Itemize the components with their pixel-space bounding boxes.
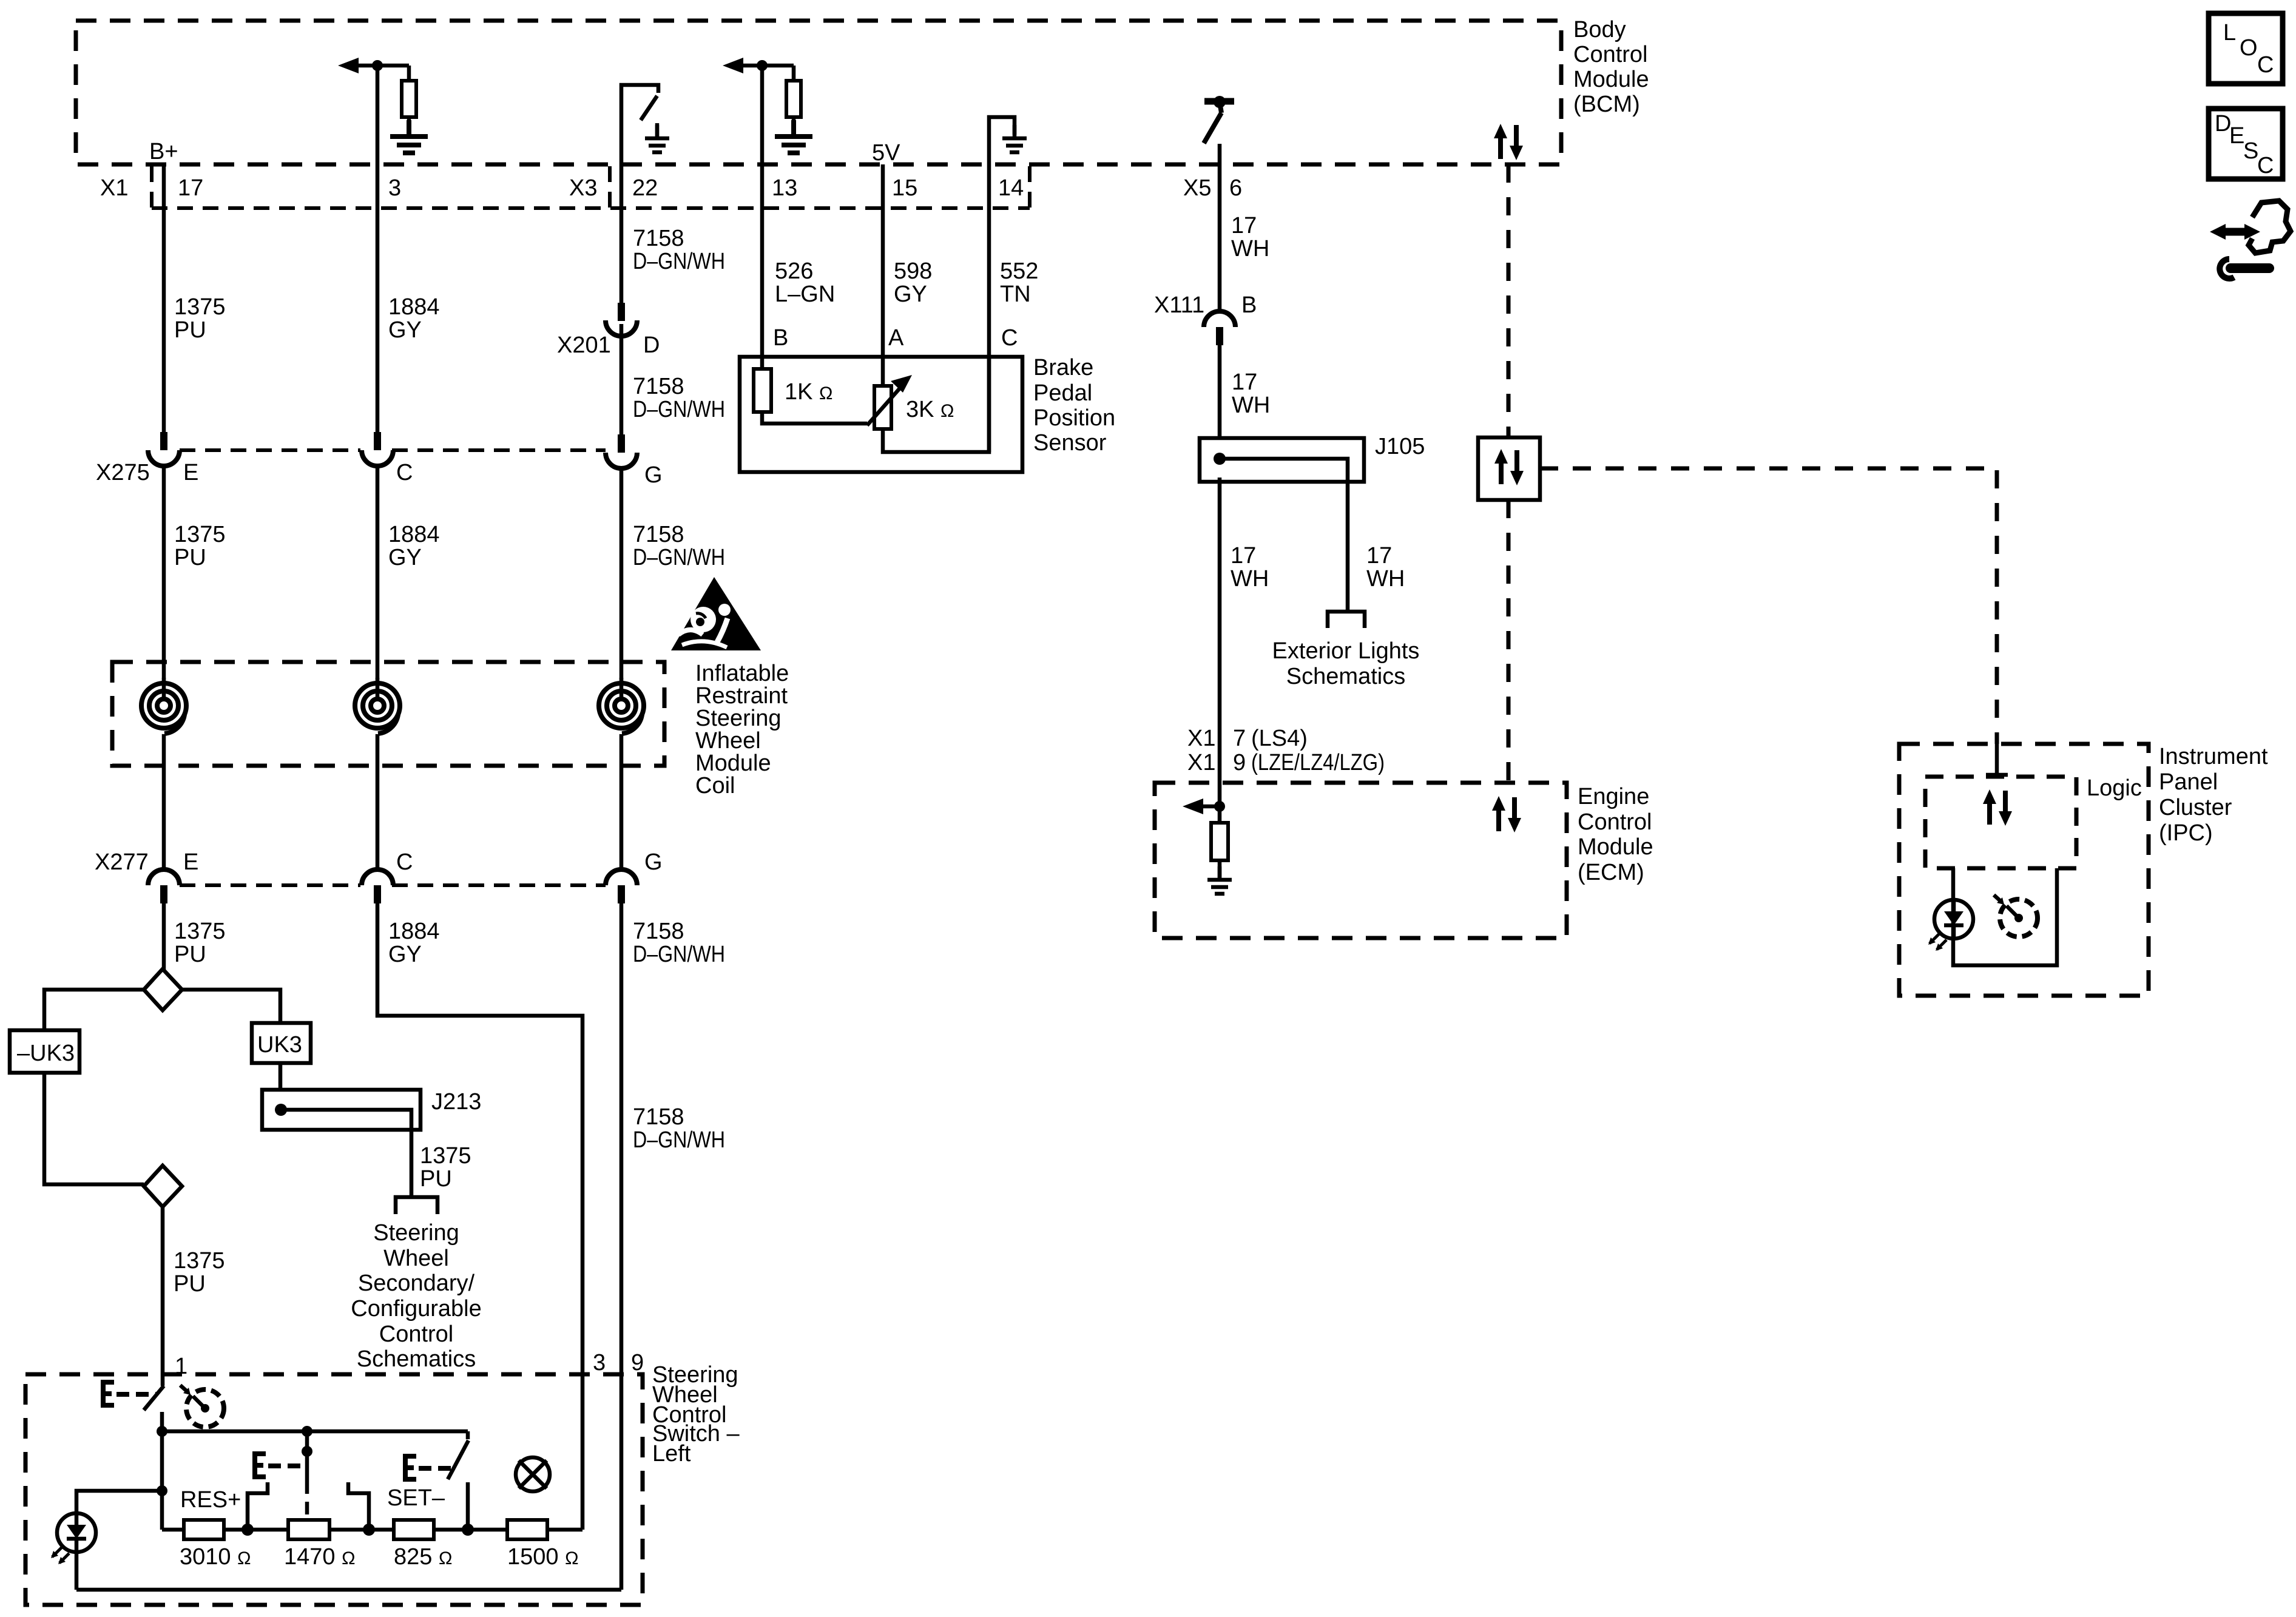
svg-text:Panel: Panel xyxy=(2159,769,2218,795)
svg-text:3K Ω: 3K Ω xyxy=(906,397,954,422)
svg-text:X1: X1 xyxy=(1187,750,1215,775)
svg-text:Steering: Steering xyxy=(373,1220,459,1246)
svg-text:9: 9 xyxy=(631,1350,644,1376)
svg-text:7158: 7158 xyxy=(633,226,684,251)
svg-text:C: C xyxy=(2257,153,2274,178)
svg-text:G: G xyxy=(644,462,663,488)
svg-text:Control: Control xyxy=(1578,809,1652,835)
svg-text:Coil: Coil xyxy=(695,773,735,798)
svg-text:(ECM): (ECM) xyxy=(1578,860,1644,885)
svg-text:552: 552 xyxy=(1000,258,1038,284)
svg-text:PU: PU xyxy=(174,545,206,570)
svg-text:825 Ω: 825 Ω xyxy=(394,1544,452,1570)
svg-text:7: 7 xyxy=(1233,726,1246,751)
svg-text:3: 3 xyxy=(593,1350,606,1376)
svg-text:X1: X1 xyxy=(1187,726,1215,751)
svg-text:Module: Module xyxy=(695,751,771,776)
svg-text:TN: TN xyxy=(1000,282,1031,307)
svg-text:Logic: Logic xyxy=(2087,775,2142,801)
svg-text:7158: 7158 xyxy=(633,919,684,944)
svg-text:L–GN: L–GN xyxy=(775,282,835,307)
svg-text:17: 17 xyxy=(1231,213,1257,238)
svg-text:PU: PU xyxy=(174,1271,206,1297)
svg-text:Module: Module xyxy=(1573,67,1649,92)
svg-text:17: 17 xyxy=(178,175,203,201)
svg-text:22: 22 xyxy=(632,175,658,201)
svg-text:D–GN/WH: D–GN/WH xyxy=(633,397,725,422)
svg-text:Sensor: Sensor xyxy=(1033,430,1107,456)
svg-text:15: 15 xyxy=(892,175,917,201)
svg-text:1884: 1884 xyxy=(388,294,440,320)
svg-text:B: B xyxy=(1241,292,1257,318)
svg-text:Engine: Engine xyxy=(1578,784,1649,809)
svg-text:X201: X201 xyxy=(557,333,611,358)
svg-text:598: 598 xyxy=(894,258,932,284)
svg-text:1375: 1375 xyxy=(174,294,226,320)
svg-text:Secondary/: Secondary/ xyxy=(358,1271,475,1296)
svg-text:Position: Position xyxy=(1033,405,1115,431)
svg-text:Body: Body xyxy=(1573,17,1626,42)
svg-text:X5: X5 xyxy=(1183,175,1211,201)
svg-text:Left: Left xyxy=(652,1441,691,1467)
svg-text:Pedal: Pedal xyxy=(1033,380,1092,406)
svg-text:Control: Control xyxy=(1573,42,1648,67)
svg-text:D–GN/WH: D–GN/WH xyxy=(633,942,725,967)
svg-text:Schematics: Schematics xyxy=(357,1346,476,1372)
svg-text:X3: X3 xyxy=(569,175,597,201)
svg-text:7158: 7158 xyxy=(633,374,684,399)
svg-text:17: 17 xyxy=(1366,543,1392,569)
svg-text:5V: 5V xyxy=(872,140,900,166)
svg-text:526: 526 xyxy=(775,258,813,284)
svg-text:1375: 1375 xyxy=(174,1248,225,1274)
svg-text:D–GN/WH: D–GN/WH xyxy=(633,249,725,274)
svg-text:X277: X277 xyxy=(95,849,149,875)
svg-text:1884: 1884 xyxy=(388,919,440,944)
svg-text:GY: GY xyxy=(388,942,422,967)
svg-text:C: C xyxy=(396,849,413,875)
svg-text:1375: 1375 xyxy=(174,522,226,547)
svg-text:Brake: Brake xyxy=(1033,355,1093,380)
svg-text:(LS4): (LS4) xyxy=(1251,726,1308,751)
svg-text:(LZE/LZ4/LZG): (LZE/LZ4/LZG) xyxy=(1251,750,1385,775)
svg-text:1375: 1375 xyxy=(420,1143,471,1169)
svg-text:C: C xyxy=(396,460,413,485)
svg-text:Schematics: Schematics xyxy=(1286,664,1405,689)
svg-text:1884: 1884 xyxy=(388,522,440,547)
svg-text:17: 17 xyxy=(1231,543,1256,569)
svg-text:E: E xyxy=(183,460,198,485)
svg-text:S: S xyxy=(2243,138,2258,164)
svg-text:GY: GY xyxy=(388,317,422,343)
svg-text:RES+: RES+ xyxy=(180,1487,241,1513)
svg-text:6: 6 xyxy=(1229,175,1242,201)
svg-text:3: 3 xyxy=(388,175,401,201)
svg-text:PU: PU xyxy=(174,317,206,343)
svg-text:WH: WH xyxy=(1231,566,1269,592)
svg-text:14: 14 xyxy=(998,175,1024,201)
svg-text:SET–: SET– xyxy=(387,1485,445,1511)
svg-text:Cluster: Cluster xyxy=(2159,795,2232,820)
svg-text:X111: X111 xyxy=(1154,292,1204,318)
svg-text:13: 13 xyxy=(772,175,797,201)
svg-text:D–GN/WH: D–GN/WH xyxy=(633,545,725,570)
svg-text:D: D xyxy=(643,333,660,358)
svg-text:L: L xyxy=(2223,20,2236,46)
svg-text:E: E xyxy=(183,849,198,875)
svg-text:Wheel: Wheel xyxy=(695,728,761,754)
svg-text:A: A xyxy=(888,325,904,351)
svg-text:J213: J213 xyxy=(431,1089,481,1115)
svg-text:Module: Module xyxy=(1578,834,1653,860)
svg-text:Restraint: Restraint xyxy=(695,683,788,709)
svg-text:WH: WH xyxy=(1231,236,1269,262)
svg-text:WH: WH xyxy=(1366,566,1405,592)
svg-text:C: C xyxy=(2257,52,2274,78)
svg-text:1375: 1375 xyxy=(174,919,226,944)
svg-text:(BCM): (BCM) xyxy=(1573,92,1640,117)
svg-text:E: E xyxy=(2229,123,2244,149)
svg-text:Wheel: Wheel xyxy=(383,1246,449,1271)
svg-text:7158: 7158 xyxy=(633,522,684,547)
svg-text:X1: X1 xyxy=(100,175,128,201)
svg-text:Steering: Steering xyxy=(695,706,782,731)
svg-text:D–GN/WH: D–GN/WH xyxy=(633,1127,725,1153)
svg-text:GY: GY xyxy=(388,545,422,570)
svg-text:C: C xyxy=(1001,325,1018,351)
svg-text:G: G xyxy=(644,849,663,875)
svg-text:X275: X275 xyxy=(96,460,150,485)
svg-text:Configurable: Configurable xyxy=(351,1296,481,1322)
svg-text:PU: PU xyxy=(420,1166,452,1192)
svg-text:Inflatable: Inflatable xyxy=(695,661,789,686)
svg-text:O: O xyxy=(2240,35,2258,61)
svg-text:1K Ω: 1K Ω xyxy=(785,379,832,405)
svg-text:UK3: UK3 xyxy=(257,1032,302,1058)
svg-text:B: B xyxy=(773,325,788,351)
svg-text:–UK3: –UK3 xyxy=(17,1041,75,1066)
svg-text:(IPC): (IPC) xyxy=(2159,820,2213,846)
svg-text:GY: GY xyxy=(894,282,927,307)
svg-text:9: 9 xyxy=(1233,750,1246,775)
svg-text:1: 1 xyxy=(175,1354,187,1379)
svg-text:Instrument: Instrument xyxy=(2159,744,2268,769)
svg-text:PU: PU xyxy=(174,942,206,967)
svg-text:17: 17 xyxy=(1232,370,1257,395)
svg-text:1470 Ω: 1470 Ω xyxy=(284,1544,356,1570)
svg-text:J105: J105 xyxy=(1375,434,1425,459)
svg-text:WH: WH xyxy=(1232,393,1270,418)
svg-text:1500 Ω: 1500 Ω xyxy=(507,1544,579,1570)
svg-text:3010 Ω: 3010 Ω xyxy=(180,1544,251,1570)
svg-text:Control: Control xyxy=(379,1322,454,1347)
svg-text:B+: B+ xyxy=(149,139,178,164)
svg-text:Exterior Lights: Exterior Lights xyxy=(1272,638,1420,664)
svg-text:7158: 7158 xyxy=(633,1104,684,1130)
